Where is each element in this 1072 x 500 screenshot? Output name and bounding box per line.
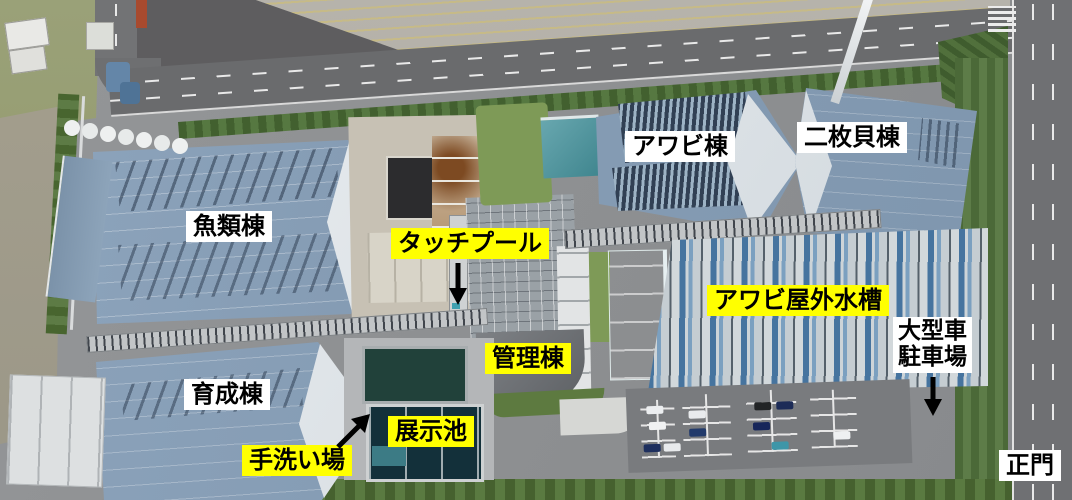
touch-pool-spot bbox=[452, 303, 460, 309]
teal-roof-hut bbox=[540, 115, 601, 179]
label-bivalve-building: 二枚貝棟 bbox=[797, 122, 907, 153]
label-hand-washing-area: 手洗い場 bbox=[242, 445, 352, 476]
red-truck bbox=[136, 0, 147, 28]
aerial-photo: 魚類棟 アワビ棟 二枚貝棟 タッチプール アワビ屋外水槽 管理棟 大型車 駐車場… bbox=[0, 0, 1072, 500]
label-large-vehicle-parking: 大型車 駐車場 bbox=[893, 317, 972, 373]
car bbox=[753, 422, 770, 431]
car bbox=[754, 402, 771, 411]
car bbox=[644, 444, 661, 453]
label-large-vehicle-parking-line2: 駐車場 bbox=[898, 344, 967, 370]
round-tank-row bbox=[64, 120, 80, 136]
car bbox=[649, 422, 666, 431]
tarp-pile bbox=[120, 82, 140, 104]
label-abalone-building: アワビ棟 bbox=[625, 131, 735, 162]
parking-lot bbox=[626, 379, 913, 473]
small-hut bbox=[86, 22, 114, 50]
label-abalone-outdoor-tanks: アワビ屋外水槽 bbox=[707, 285, 889, 316]
label-exhibition-pond: 展示池 bbox=[388, 416, 474, 447]
car bbox=[689, 428, 706, 437]
label-main-gate: 正門 bbox=[999, 450, 1061, 481]
car bbox=[688, 410, 705, 419]
car bbox=[772, 441, 789, 450]
label-fish-building: 魚類棟 bbox=[186, 211, 272, 242]
upper-pond bbox=[362, 346, 468, 404]
white-building-west bbox=[6, 374, 106, 487]
dark-tank bbox=[386, 156, 434, 220]
label-rearing-building: 育成棟 bbox=[184, 379, 270, 410]
car bbox=[664, 443, 681, 452]
road-east bbox=[1012, 0, 1072, 500]
exhibition-pond-cell bbox=[372, 446, 406, 466]
car bbox=[833, 431, 850, 440]
crosswalk bbox=[988, 6, 1016, 32]
car bbox=[776, 401, 793, 410]
label-admin-building: 管理棟 bbox=[485, 343, 571, 374]
white-tent bbox=[9, 46, 48, 75]
label-large-vehicle-parking-line1: 大型車 bbox=[898, 318, 967, 344]
car bbox=[646, 406, 663, 415]
parking-stalls bbox=[682, 393, 732, 457]
label-touch-pool: タッチプール bbox=[391, 228, 549, 259]
